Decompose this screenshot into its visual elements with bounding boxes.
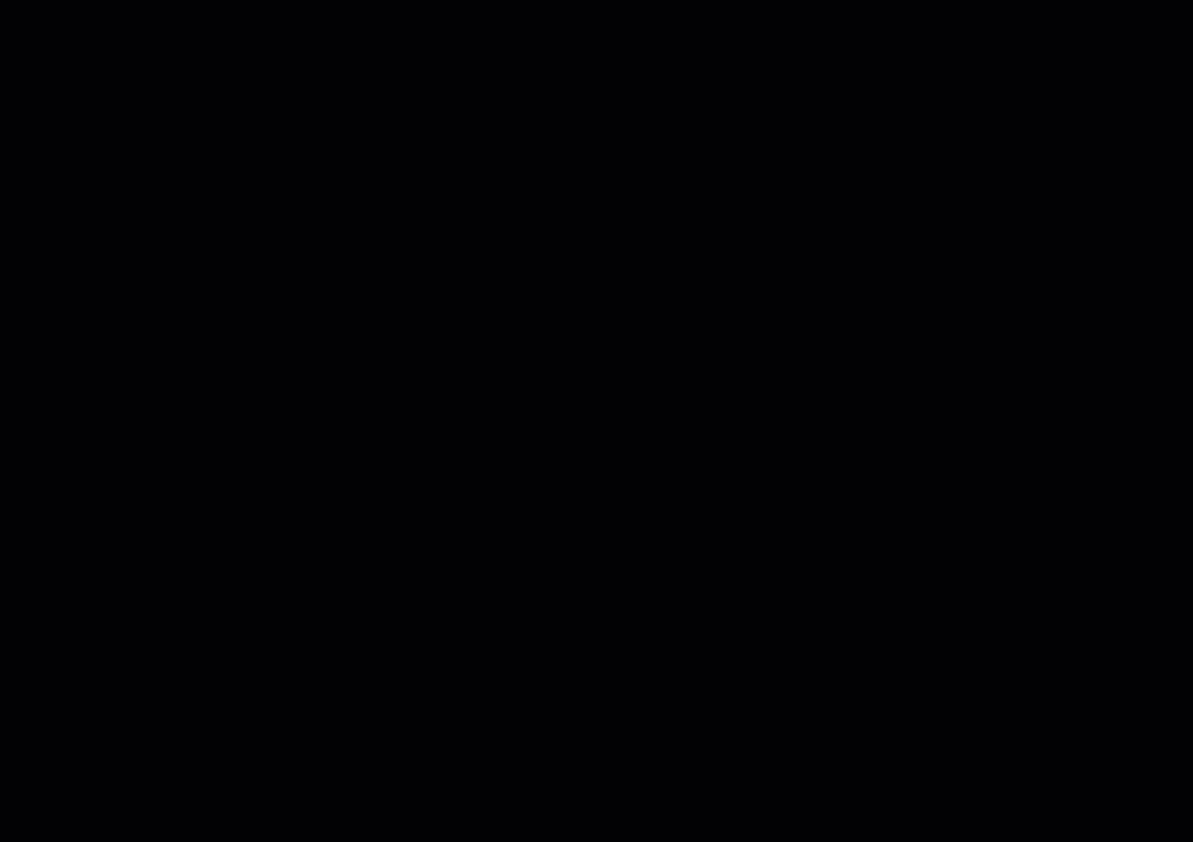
pcb-canvas[interactable]	[0, 0, 1193, 842]
pcb-layout-window	[0, 0, 1193, 842]
